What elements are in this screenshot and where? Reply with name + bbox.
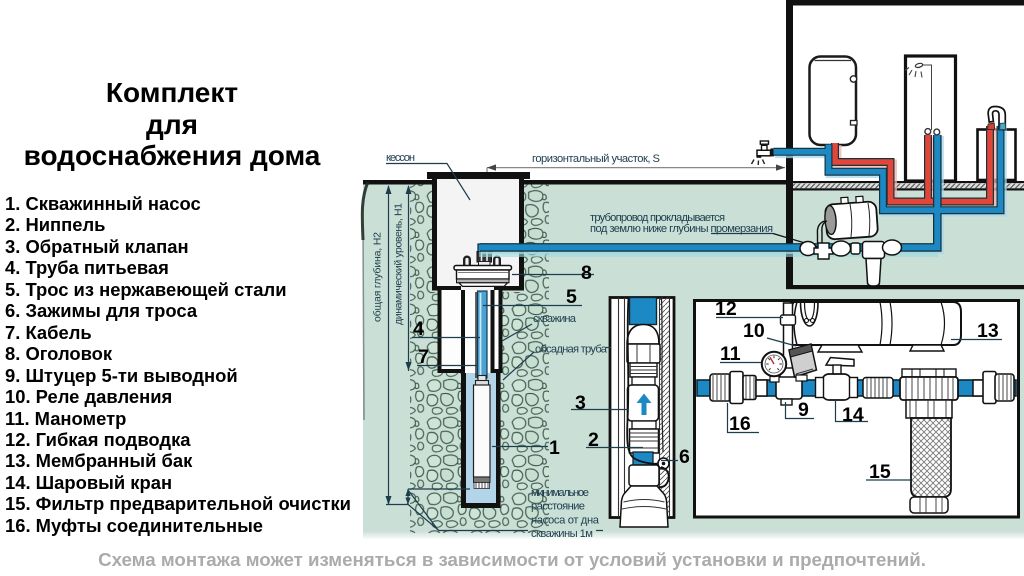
svg-text:13: 13 bbox=[977, 320, 999, 342]
svg-text:9: 9 bbox=[798, 399, 809, 421]
svg-text:14: 14 bbox=[842, 404, 864, 426]
svg-text:насоса от дна: насоса от дна bbox=[531, 514, 600, 526]
svg-text:8: 8 bbox=[581, 262, 592, 284]
svg-text:6: 6 bbox=[679, 446, 690, 468]
svg-text:кессон: кессон bbox=[386, 152, 415, 164]
svg-text:16: 16 bbox=[729, 413, 751, 435]
svg-text:2: 2 bbox=[588, 429, 599, 451]
svg-text:11: 11 bbox=[720, 343, 741, 365]
svg-text:1: 1 bbox=[549, 437, 560, 459]
svg-text:10: 10 bbox=[743, 320, 765, 342]
svg-text:5: 5 bbox=[566, 286, 577, 308]
svg-text:3: 3 bbox=[575, 392, 586, 414]
svg-text:расстояние: расстояние bbox=[531, 501, 585, 513]
svg-text:общая глубина, Н2: общая глубина, Н2 bbox=[372, 232, 384, 322]
svg-text:4: 4 bbox=[413, 318, 424, 340]
svg-text:15: 15 bbox=[869, 461, 891, 483]
svg-text:под землю ниже глубины промерз: под землю ниже глубины промерзания bbox=[590, 223, 773, 235]
svg-text:скважины 1м: скважины 1м bbox=[531, 528, 593, 540]
svg-text:скважина: скважина bbox=[533, 313, 577, 325]
svg-text:7: 7 bbox=[418, 346, 429, 368]
svg-text:обсадная труба: обсадная труба bbox=[535, 344, 608, 356]
svg-text:динамический уровень, Н1: динамический уровень, Н1 bbox=[393, 203, 405, 325]
svg-text:12: 12 bbox=[715, 298, 737, 320]
svg-text:минимальное: минимальное bbox=[531, 487, 589, 499]
svg-text:горизонтальный участок, S: горизонтальный участок, S bbox=[532, 153, 660, 165]
